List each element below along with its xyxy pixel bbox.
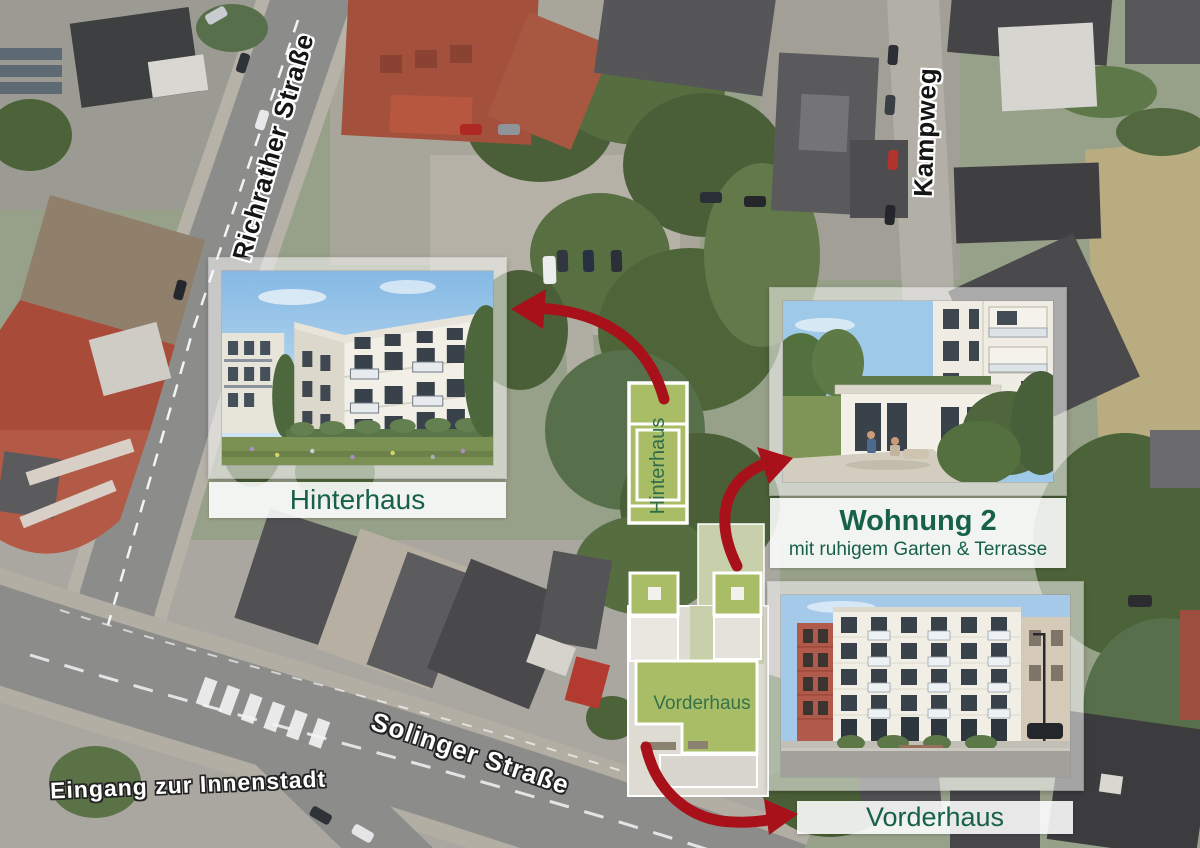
wohnung2-inset-card xyxy=(770,288,1066,495)
street-label-kampweg: Kampweg xyxy=(910,67,941,198)
hinterhaus-inset-label: Hinterhaus xyxy=(290,485,425,516)
aerial-site-plan: Richrather Straße Kampweg Solinger Straß… xyxy=(0,0,1200,848)
wohnung2-inset-label-bar: Wohnung 2 mit ruhigem Garten & Terrasse xyxy=(770,498,1066,568)
wohnung2-rendering xyxy=(783,301,1053,482)
wohnung2-subtitle: mit ruhigem Garten & Terrasse xyxy=(789,539,1047,561)
siteplan-hinterhaus-label: Hinterhaus xyxy=(648,408,668,524)
vorderhaus-inset-label: Vorderhaus xyxy=(866,803,1004,833)
hinterhaus-rendering xyxy=(222,271,493,465)
wohnung2-title: Wohnung 2 xyxy=(839,505,996,538)
vorderhaus-inset-card xyxy=(768,582,1083,790)
hinterhaus-inset-card xyxy=(209,258,506,478)
vorderhaus-inset-label-bar: Vorderhaus xyxy=(797,801,1073,834)
siteplan-vorderhaus-label: Vorderhaus xyxy=(637,694,767,713)
vorderhaus-rendering xyxy=(781,595,1070,777)
hinterhaus-inset-label-bar: Hinterhaus xyxy=(209,482,506,518)
